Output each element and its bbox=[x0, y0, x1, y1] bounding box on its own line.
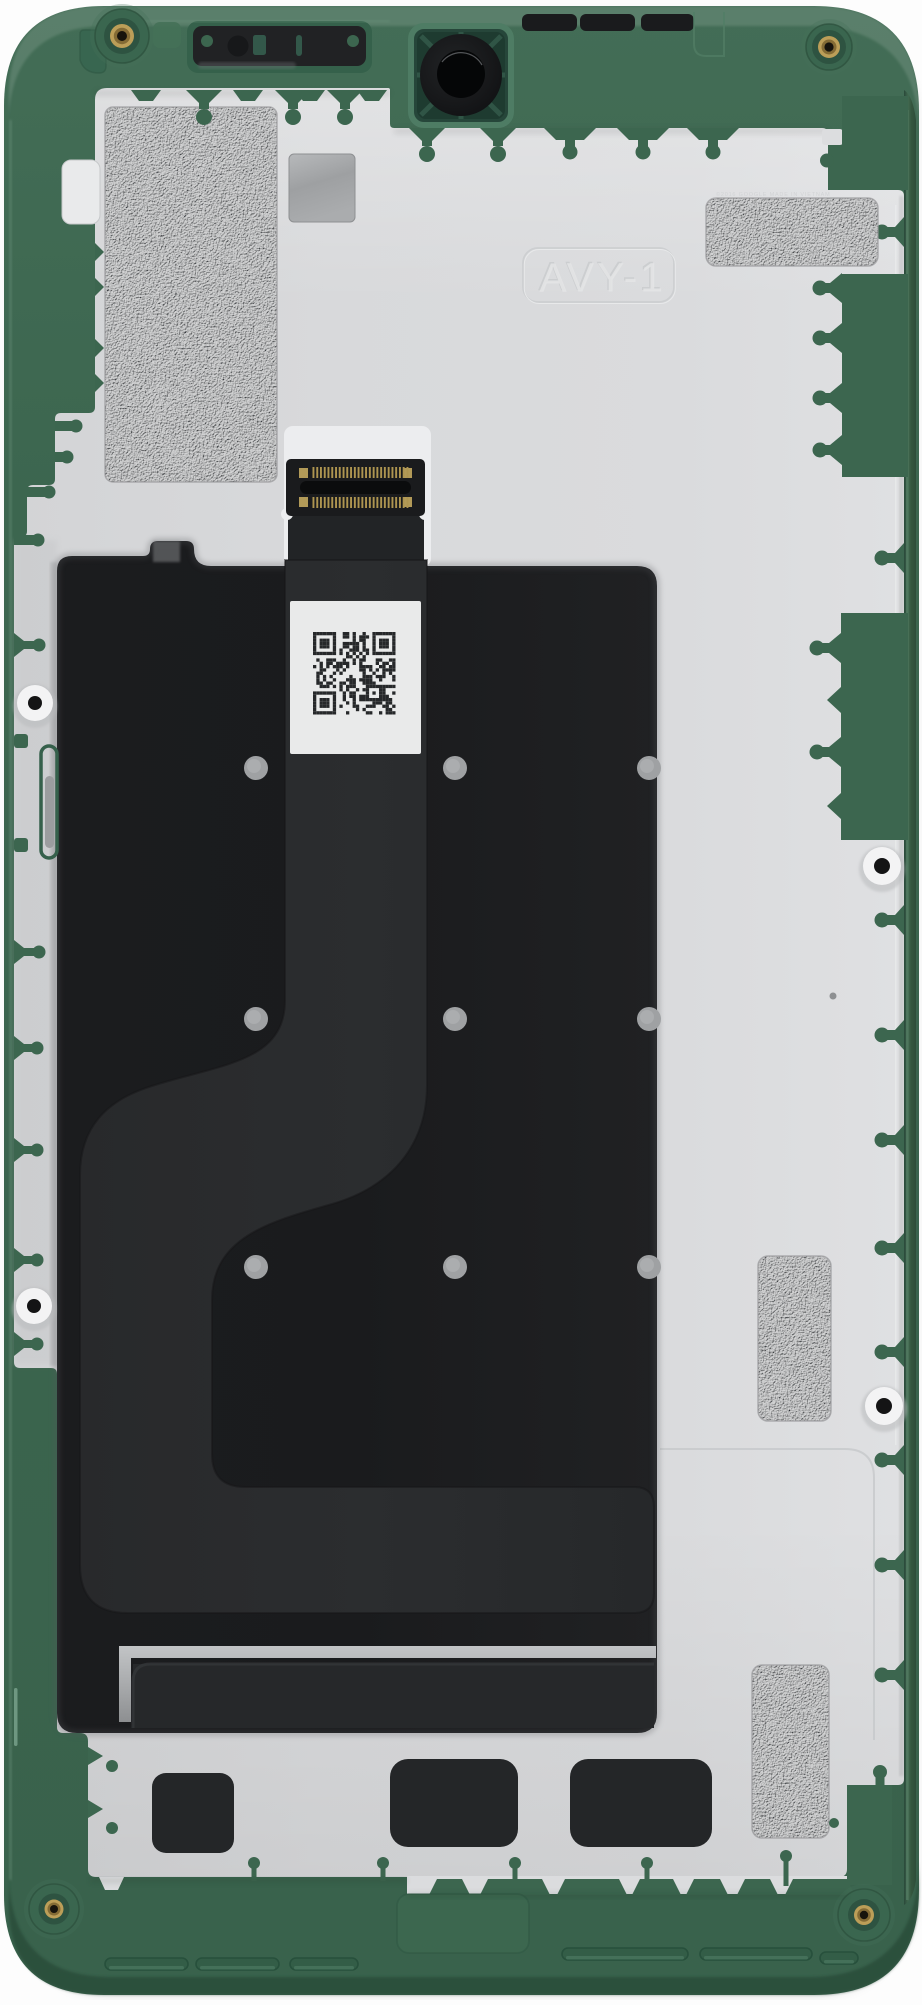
svg-text:AVY-1: AVY-1 bbox=[539, 254, 666, 300]
svg-text:©2016 GOOGLE MADE IN VIETNAM: ©2016 GOOGLE MADE IN VIETNAM bbox=[716, 191, 830, 198]
